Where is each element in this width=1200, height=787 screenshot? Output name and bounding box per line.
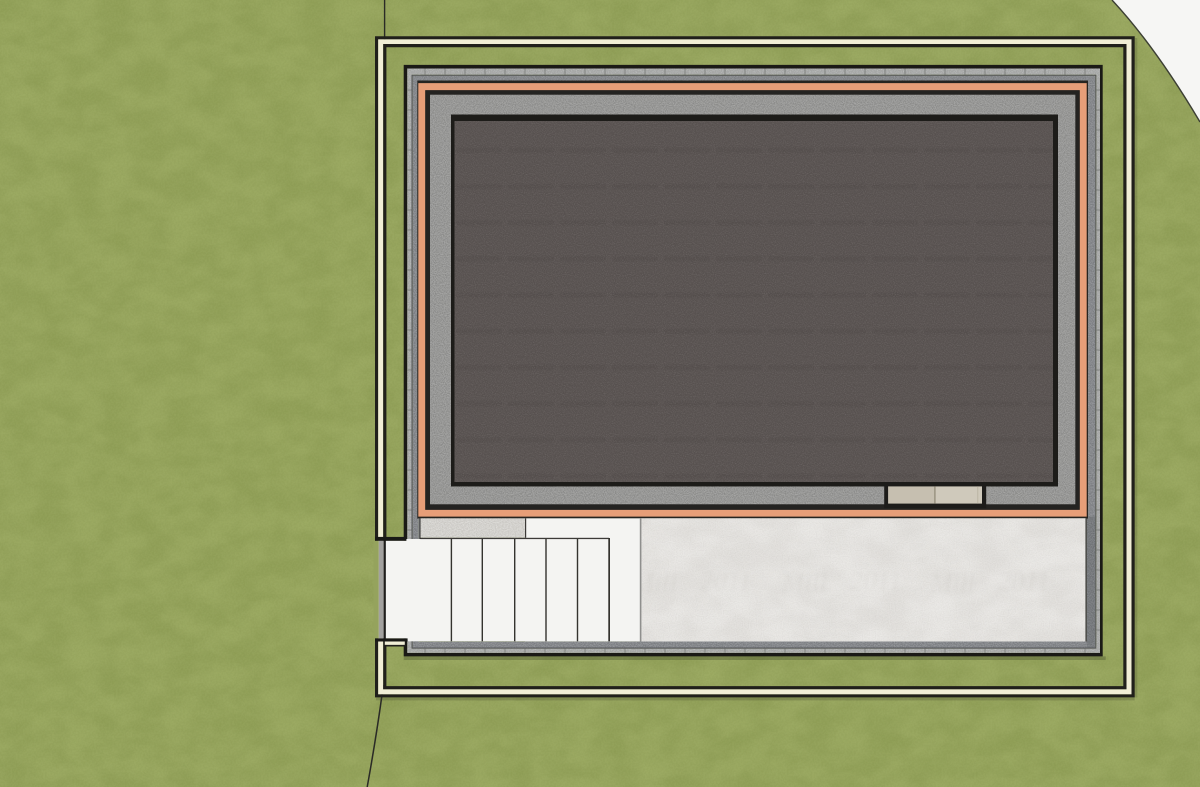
svg-text:2011: 2011 [998, 566, 1050, 596]
svg-text:2011: 2011 [850, 566, 902, 596]
svg-text:Mill: Mill [781, 568, 827, 598]
svg-text:2011: 2011 [700, 566, 752, 596]
svg-text:Mill: Mill [929, 568, 975, 598]
